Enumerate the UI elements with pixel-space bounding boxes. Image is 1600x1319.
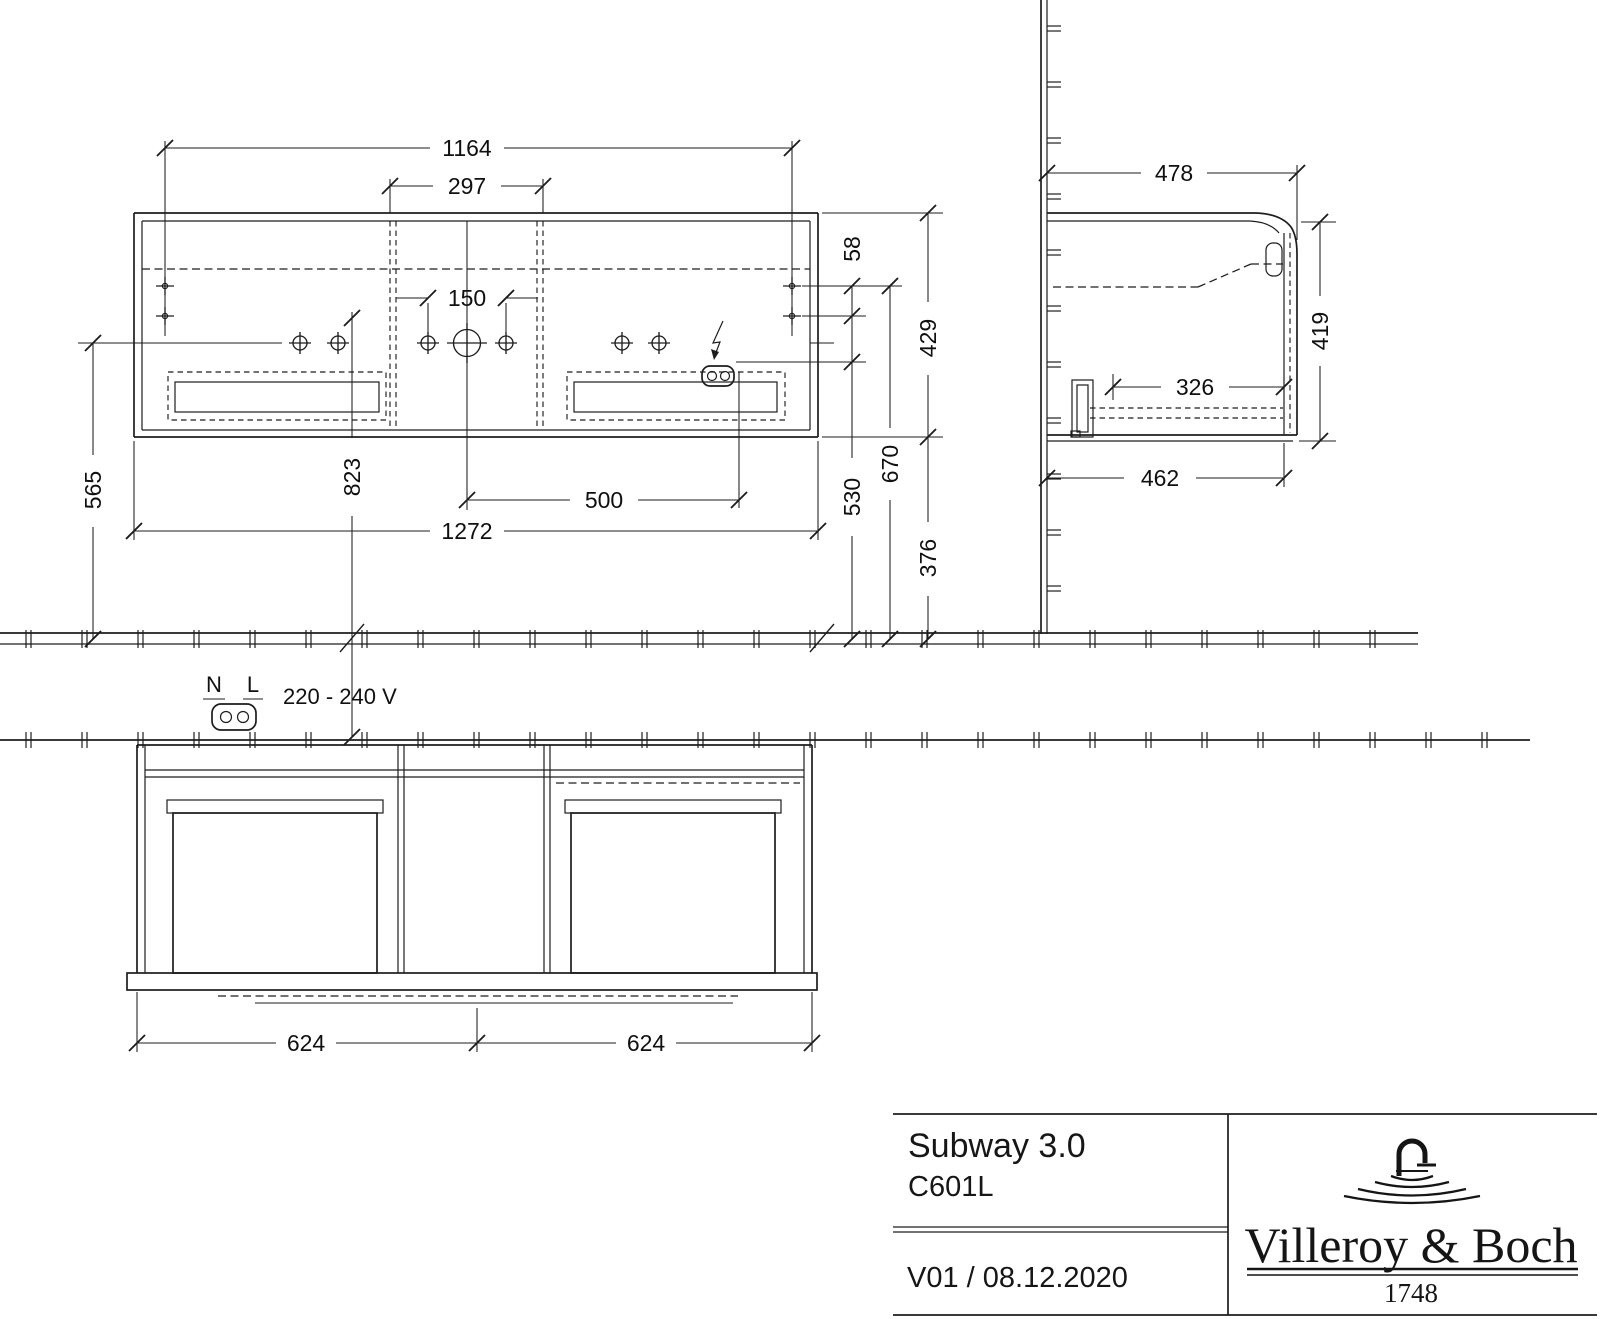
drawer-hidden-outline bbox=[168, 372, 785, 420]
brand-year: 1748 bbox=[1384, 1278, 1438, 1308]
dim-center-section: 297 bbox=[448, 173, 486, 199]
faucet-icon bbox=[1344, 1141, 1480, 1203]
technical-drawing-page: 1164 297 150 500 1272 565 823 58 530 670… bbox=[0, 0, 1600, 1319]
screw-hole-marks bbox=[289, 323, 670, 363]
right-drawer-top bbox=[565, 800, 781, 813]
villeroy-boch-logo: Villeroy & Boch 1748 bbox=[1244, 1141, 1578, 1308]
dim-total-depth: 478 bbox=[1155, 160, 1193, 186]
neutral-label: N bbox=[206, 672, 222, 697]
dim-total-width: 1272 bbox=[441, 518, 492, 544]
drawing-version: V01 / 08.12.2020 bbox=[907, 1262, 1128, 1294]
bottom-rail bbox=[127, 973, 817, 990]
dim-bottom-clearance: 376 bbox=[915, 539, 941, 577]
model-number: C601L bbox=[908, 1171, 993, 1203]
front-view: 1164 297 150 500 1272 565 823 58 530 670… bbox=[78, 135, 943, 745]
voltage-label: 220 - 240 V bbox=[283, 684, 397, 709]
title-block: Subway 3.0 C601L V01 / 08.12.2020 Viller… bbox=[893, 1114, 1597, 1315]
dim-carcass-depth: 462 bbox=[1141, 465, 1179, 491]
dim-mounting-height: 823 bbox=[339, 458, 365, 496]
dim-hanger-to-top: 58 bbox=[839, 236, 865, 262]
left-drawer-top bbox=[167, 800, 383, 813]
faucet-hole-mark bbox=[447, 323, 487, 363]
wall-socket-icon bbox=[212, 704, 256, 730]
dim-faucet-holes: 150 bbox=[448, 285, 486, 311]
dim-right-drawer-width: 624 bbox=[627, 1030, 666, 1056]
cabinet-socket-symbol bbox=[702, 321, 734, 386]
lightning-bolt-icon bbox=[713, 321, 723, 355]
floor-wall-lines bbox=[0, 0, 1530, 748]
left-drawer-front bbox=[173, 813, 377, 973]
dimension-lines bbox=[93, 148, 928, 737]
right-drawer-front bbox=[571, 813, 775, 973]
line-label: L bbox=[247, 672, 259, 697]
side-view: 478 419 326 462 bbox=[1039, 160, 1336, 491]
dim-hanger-height: 670 bbox=[877, 445, 903, 483]
handle-profile bbox=[1266, 243, 1282, 276]
bottom-view: 624 624 bbox=[127, 745, 820, 1056]
dim-inner-depth: 326 bbox=[1176, 374, 1214, 400]
extension-lines bbox=[78, 141, 943, 540]
dim-hole-row-height: 565 bbox=[80, 471, 106, 509]
brand-name: Villeroy & Boch bbox=[1244, 1217, 1577, 1273]
electrical-connection: N L 220 - 240 V bbox=[203, 672, 397, 730]
dim-socket-offset: 500 bbox=[585, 487, 623, 513]
dim-socket-height: 530 bbox=[839, 478, 865, 516]
dimension-ticks bbox=[85, 140, 936, 745]
wall-line-hatch bbox=[1047, 0, 1061, 634]
drawing-canvas: 1164 297 150 500 1272 565 823 58 530 670… bbox=[0, 0, 1600, 1319]
siphon-space bbox=[1071, 380, 1093, 437]
dim-side-height: 419 bbox=[1307, 312, 1333, 350]
dim-cabinet-height: 429 bbox=[915, 319, 941, 357]
dim-left-drawer-width: 624 bbox=[287, 1030, 326, 1056]
dim-hole-spacing: 1164 bbox=[442, 135, 492, 161]
series-name: Subway 3.0 bbox=[908, 1127, 1086, 1165]
